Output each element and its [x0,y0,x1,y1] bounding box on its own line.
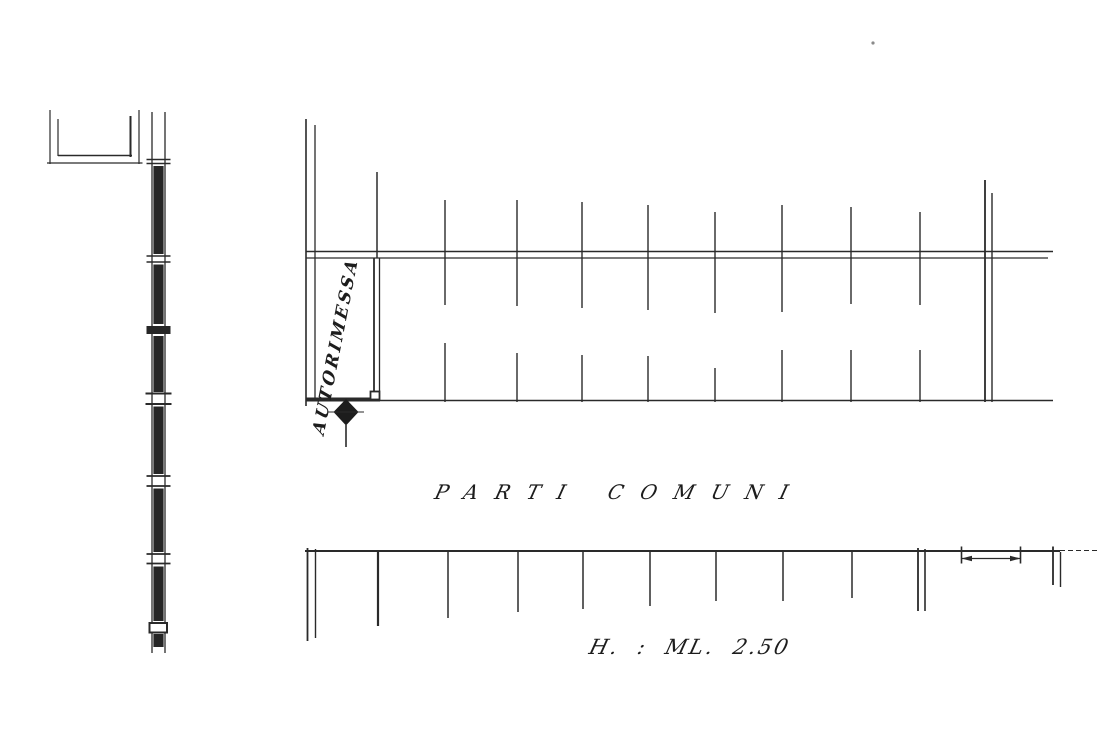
parking-row-top [306,119,1053,406]
right-end-wall-stub [1053,547,1061,588]
height-note: H. : ML. 2.50 [587,635,793,659]
common-area-label: PARTICOMUNI [432,480,807,504]
left-wall-section [146,112,172,653]
scanned-floor-plan-page: AUTORIMESSA PARTICOMUNI H. : ML. 2.50 [0,0,1118,742]
common-area-word-parti: PARTI [432,480,585,504]
garage-unit-wall [371,258,380,400]
stall-dividers-lower [445,343,920,402]
dim-arrow-right [1010,556,1021,562]
wall-end-box [150,623,168,633]
common-area-word-comuni: COMUNI [605,480,807,504]
corridor-walls [47,110,143,164]
pillar-double-line [918,548,925,611]
stall-dividers-bottom-row [378,551,852,626]
dim-arrow-left [962,556,973,562]
parking-row-bottom [305,547,1098,642]
dimension-bracket [962,547,1021,564]
scan-speck [871,41,874,44]
stall-dividers-upper [377,172,920,313]
wall-fill [147,166,171,647]
garage-door-jamb [371,392,380,400]
floor-plan-drawing [0,0,1118,742]
